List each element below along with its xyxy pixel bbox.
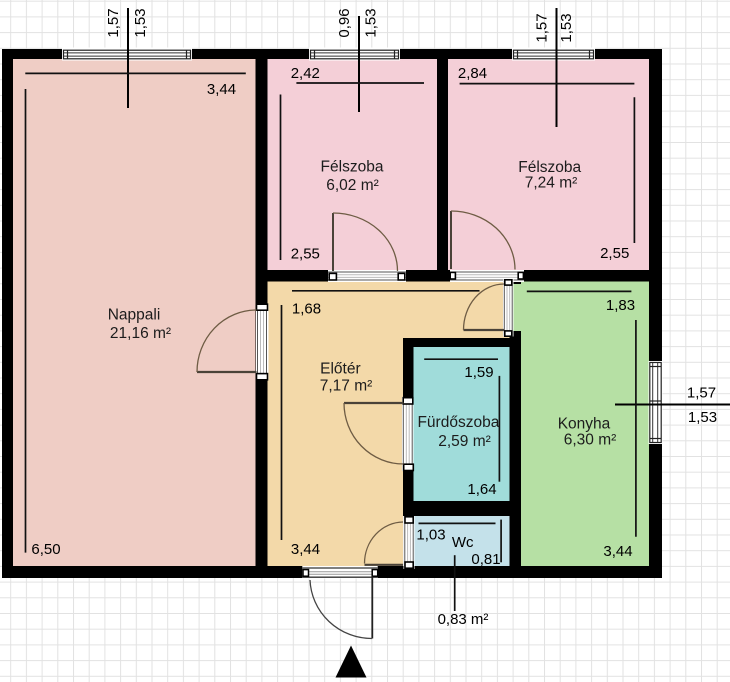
- svg-text:6,50: 6,50: [31, 541, 60, 558]
- svg-text:1,53: 1,53: [132, 8, 149, 37]
- svg-text:6,30 m²: 6,30 m²: [564, 431, 617, 448]
- svg-text:2,84: 2,84: [458, 65, 487, 82]
- svg-text:7,24 m²: 7,24 m²: [525, 175, 578, 192]
- svg-text:1,57: 1,57: [687, 385, 716, 402]
- svg-text:0,96: 0,96: [336, 8, 353, 37]
- svg-text:Fürdőszoba: Fürdőszoba: [417, 414, 499, 431]
- svg-text:1,57: 1,57: [534, 13, 551, 42]
- svg-text:1,53: 1,53: [688, 409, 717, 426]
- svg-text:1,53: 1,53: [363, 8, 380, 37]
- svg-text:Félszoba: Félszoba: [518, 159, 581, 176]
- svg-text:1,83: 1,83: [606, 297, 635, 314]
- svg-text:2,55: 2,55: [291, 246, 320, 263]
- svg-text:Wc: Wc: [452, 534, 474, 551]
- svg-text:Félszoba: Félszoba: [321, 159, 384, 176]
- svg-text:Előtér: Előtér: [320, 361, 361, 378]
- svg-text:6,02 m²: 6,02 m²: [326, 177, 379, 194]
- svg-text:2,59 m²: 2,59 m²: [438, 433, 491, 450]
- svg-text:Konyha: Konyha: [558, 415, 611, 432]
- svg-text:1,68: 1,68: [292, 301, 321, 318]
- svg-text:3,44: 3,44: [603, 543, 632, 560]
- svg-text:21,16 m²: 21,16 m²: [110, 325, 171, 342]
- svg-text:2,42: 2,42: [291, 65, 320, 82]
- svg-text:Nappali: Nappali: [108, 306, 161, 323]
- svg-text:0,83 m²: 0,83 m²: [438, 611, 489, 628]
- svg-text:7,17 m²: 7,17 m²: [320, 378, 373, 395]
- svg-text:0,81: 0,81: [471, 551, 500, 568]
- svg-text:3,44: 3,44: [207, 81, 236, 98]
- svg-text:3,44: 3,44: [291, 541, 320, 558]
- svg-text:1,57: 1,57: [105, 8, 122, 37]
- svg-text:1,03: 1,03: [416, 527, 445, 544]
- svg-text:1,59: 1,59: [464, 364, 493, 381]
- svg-text:1,64: 1,64: [467, 481, 496, 498]
- svg-text:1,53: 1,53: [558, 13, 575, 42]
- svg-text:2,55: 2,55: [600, 245, 629, 262]
